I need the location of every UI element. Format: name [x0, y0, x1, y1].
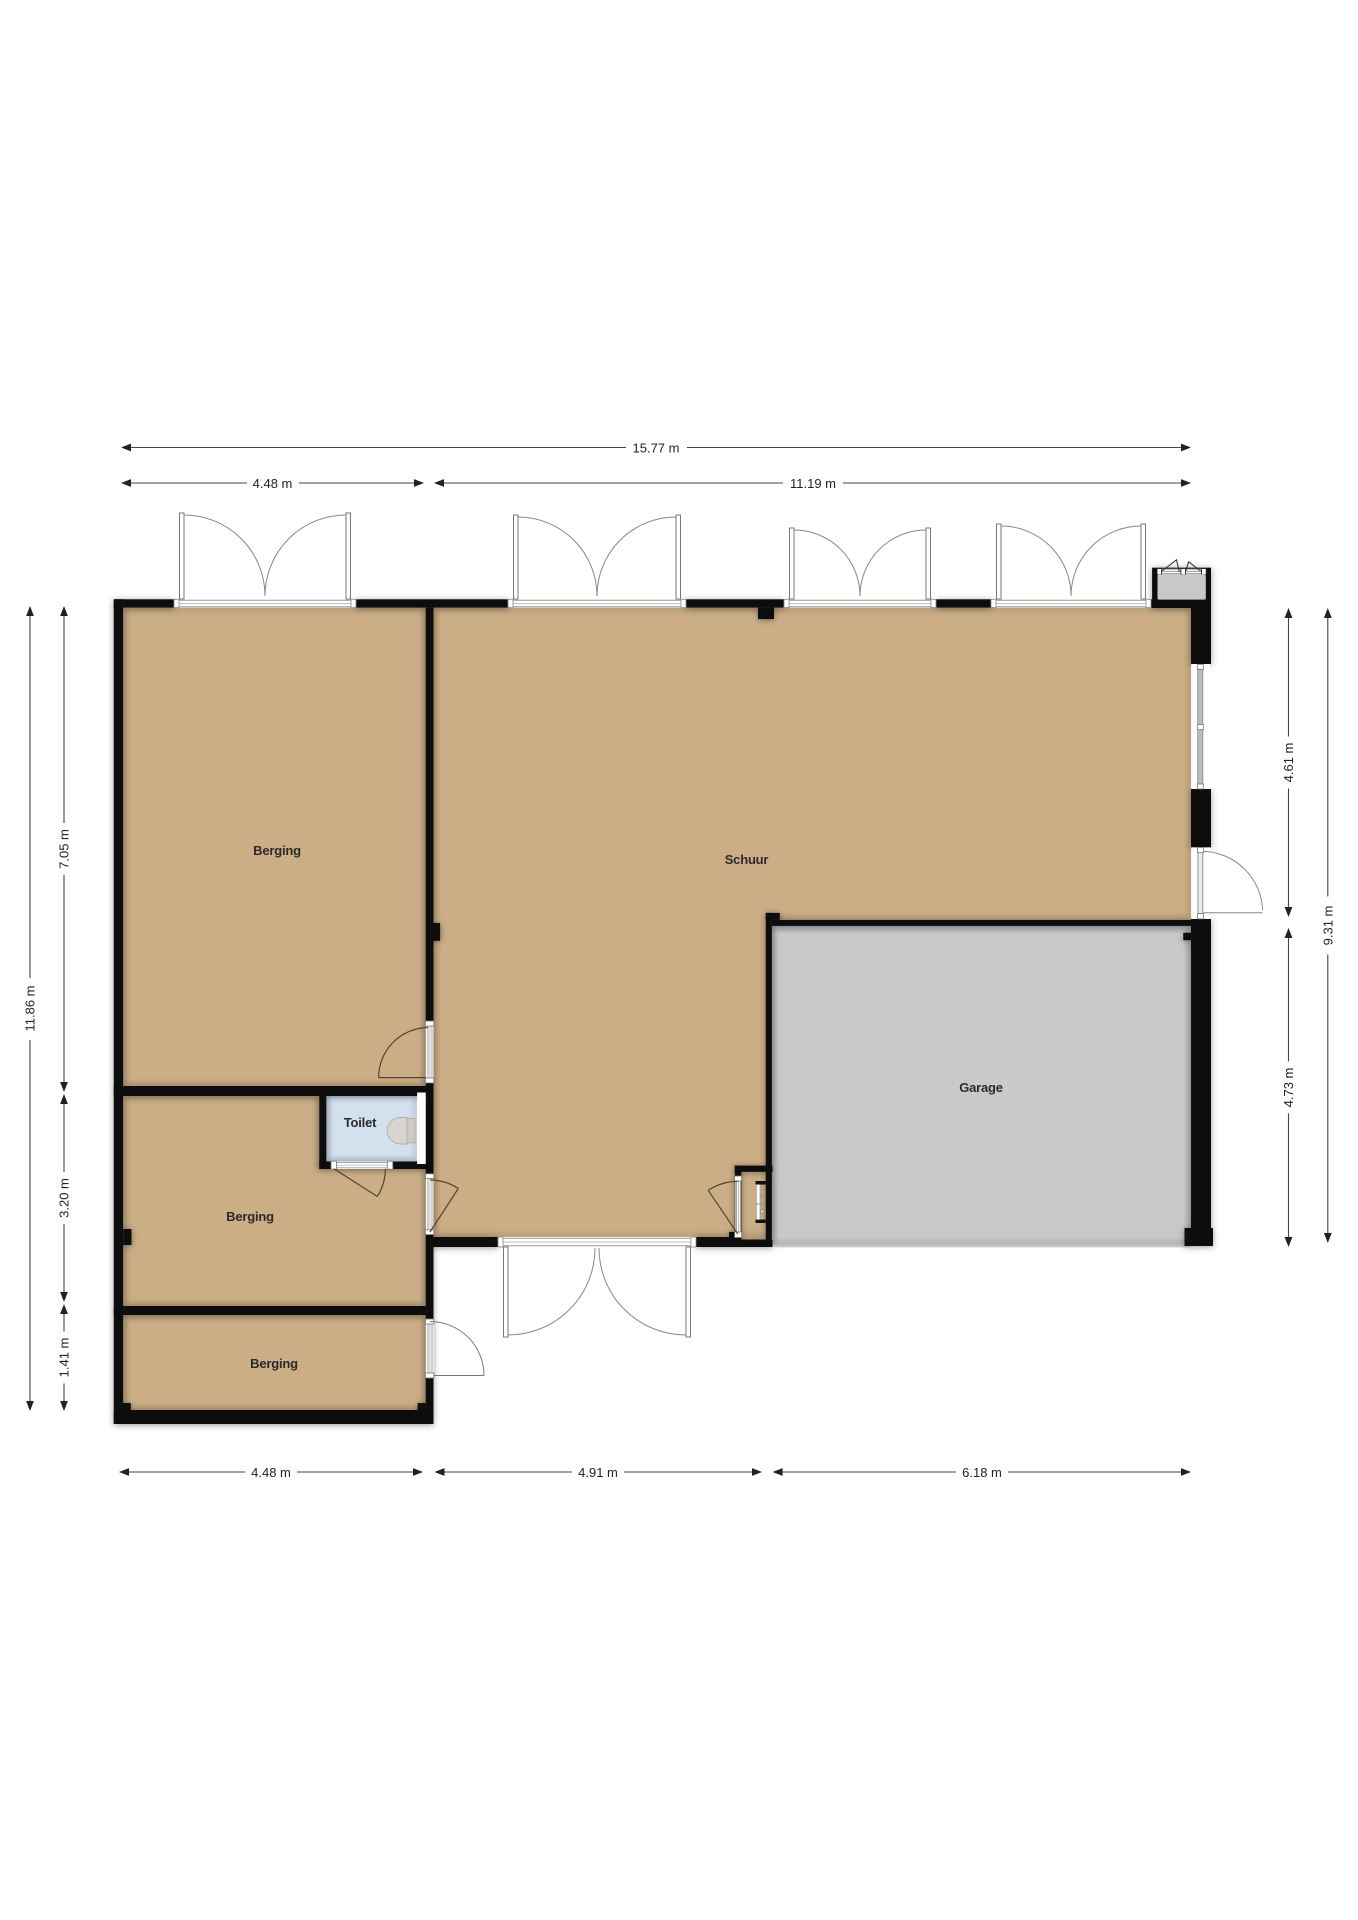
svg-text:Berging: Berging: [250, 1356, 298, 1371]
svg-text:Berging: Berging: [253, 843, 301, 858]
svg-text:4.73 m: 4.73 m: [1281, 1068, 1296, 1108]
svg-text:15.77 m: 15.77 m: [633, 441, 680, 456]
svg-text:9.31 m: 9.31 m: [1320, 906, 1335, 946]
svg-text:11.86 m: 11.86 m: [23, 985, 38, 1031]
svg-text:4.48 m: 4.48 m: [253, 476, 293, 491]
svg-text:7.05 m: 7.05 m: [57, 829, 72, 869]
svg-text:Garage: Garage: [959, 1080, 1003, 1095]
svg-text:4.48 m: 4.48 m: [251, 1465, 291, 1480]
svg-text:6.18 m: 6.18 m: [962, 1465, 1002, 1480]
svg-text:4.61 m: 4.61 m: [1281, 743, 1296, 783]
svg-text:11.19 m: 11.19 m: [790, 476, 836, 491]
svg-text:4.91 m: 4.91 m: [578, 1465, 618, 1480]
svg-text:1.41 m: 1.41 m: [57, 1338, 72, 1378]
svg-text:Toilet: Toilet: [344, 1115, 377, 1130]
svg-text:Berging: Berging: [226, 1209, 274, 1224]
svg-text:Schuur: Schuur: [725, 852, 769, 867]
svg-text:3.20 m: 3.20 m: [57, 1178, 72, 1218]
